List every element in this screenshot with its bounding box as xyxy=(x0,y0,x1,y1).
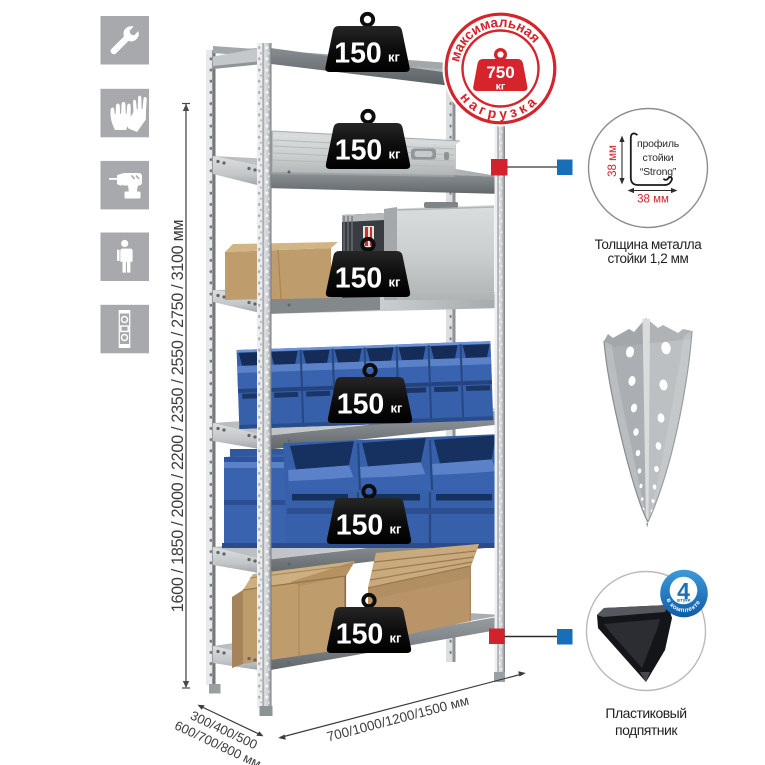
svg-text:профиль: профиль xyxy=(637,138,680,150)
svg-text:кг: кг xyxy=(388,50,401,65)
svg-text:150: 150 xyxy=(335,263,383,295)
svg-text:кг: кг xyxy=(390,522,403,537)
svg-text:150: 150 xyxy=(335,135,383,167)
svg-text:38 мм: 38 мм xyxy=(637,194,669,206)
svg-text:стойки 1,2 мм: стойки 1,2 мм xyxy=(608,251,689,266)
svg-text:150: 150 xyxy=(334,38,382,70)
svg-text:кг: кг xyxy=(389,275,402,290)
svg-text:“Strong”: “Strong” xyxy=(640,166,677,178)
svg-text:1600 / 1850 / 2000 / 2200 / 23: 1600 / 1850 / 2000 / 2200 / 2350 / 2550 … xyxy=(169,220,187,613)
svg-text:подпятник: подпятник xyxy=(615,722,678,738)
svg-text:150: 150 xyxy=(336,510,384,542)
svg-text:38 мм: 38 мм xyxy=(607,145,619,177)
svg-text:Толщина металла: Толщина металла xyxy=(595,237,703,252)
svg-text:кг: кг xyxy=(390,631,403,646)
svg-text:стойки: стойки xyxy=(643,152,674,164)
svg-text:кг: кг xyxy=(389,147,402,162)
svg-text:150: 150 xyxy=(337,389,385,421)
svg-text:750: 750 xyxy=(486,63,514,82)
svg-text:кг: кг xyxy=(391,401,404,416)
svg-text:кг: кг xyxy=(496,81,506,93)
svg-text:150: 150 xyxy=(336,619,384,651)
svg-text:штуки: штуки xyxy=(677,598,691,603)
svg-text:Пластиковый: Пластиковый xyxy=(605,705,686,721)
